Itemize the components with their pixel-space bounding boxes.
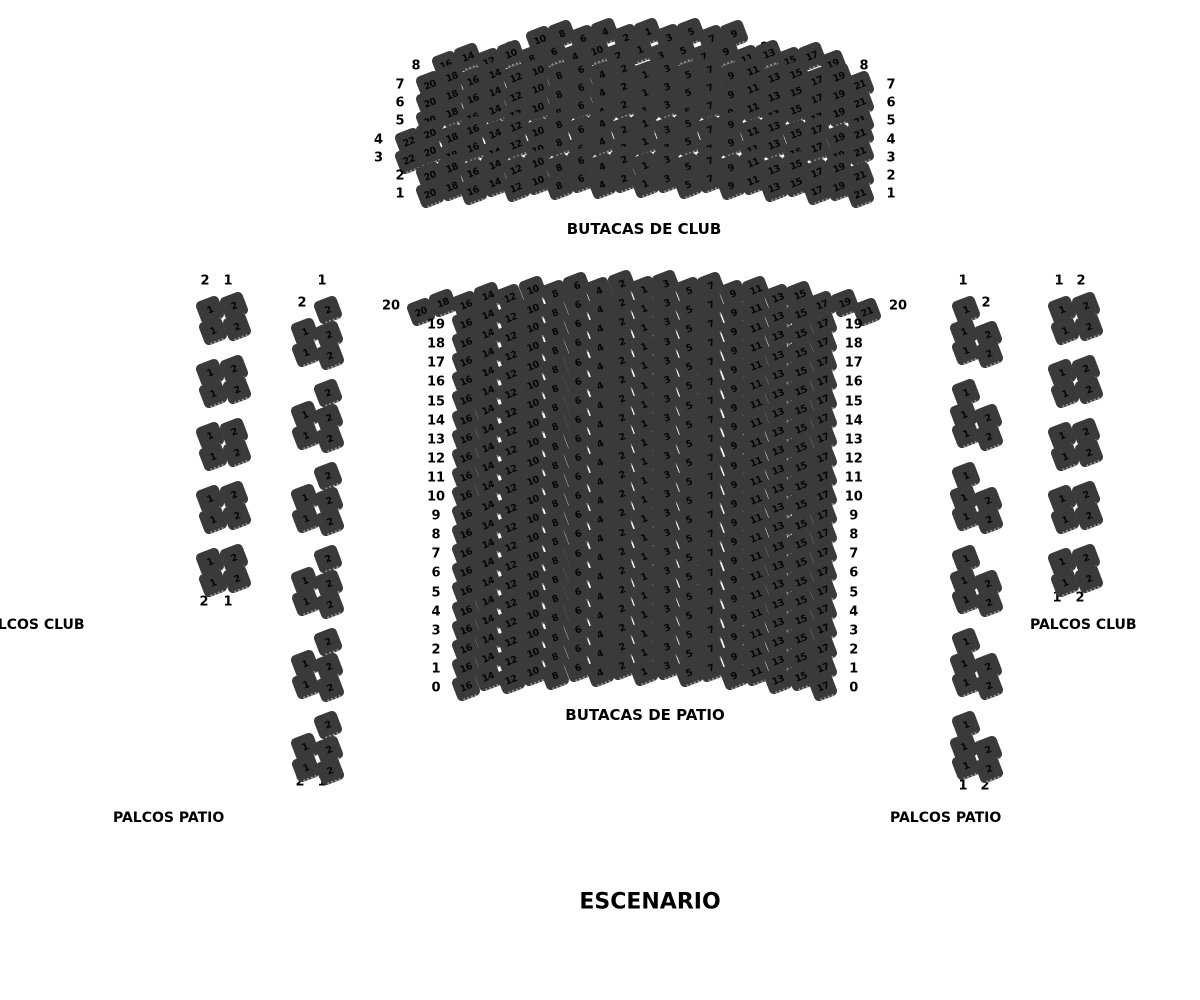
seat-map: BUTACAS DE CLUB BUTACAS DE PATIO PALCOS … — [0, 0, 1200, 1000]
row-label-right: 16 — [845, 375, 863, 390]
row-label-right: 4 — [849, 604, 858, 619]
palcos-patio-left-label: PALCOS PATIO — [113, 810, 224, 826]
row-label-right: 11 — [845, 470, 863, 485]
row-label-right: 2 — [886, 169, 895, 184]
row-label-left: 19 — [427, 318, 445, 333]
row-label-right: 18 — [845, 337, 863, 352]
row-label-left: 5 — [431, 585, 440, 600]
seat[interactable]: 2 — [312, 709, 343, 740]
patio-section-label: BUTACAS DE PATIO — [565, 706, 724, 724]
palco-column-header: 1 — [1054, 274, 1063, 289]
palco-column-header: 2 — [200, 274, 209, 289]
row-label-right: 10 — [845, 490, 863, 505]
row-label-right: 15 — [845, 394, 863, 409]
palcos-club-right-label: PALCOS CLUB — [1030, 617, 1137, 633]
row-label-left: 8 — [411, 59, 420, 74]
row-label-right: 20 — [889, 299, 907, 314]
row-label-right: 19 — [845, 318, 863, 333]
row-label-left: 15 — [427, 394, 445, 409]
row-label-left: 14 — [427, 413, 445, 428]
seat[interactable]: 2 — [312, 460, 343, 491]
palco-column-header: 1 — [223, 274, 232, 289]
palcos-club-left-label: PALCOS CLUB — [0, 617, 85, 633]
palco-column-footer: 1 — [223, 595, 232, 610]
seat[interactable]: 2 — [312, 543, 343, 574]
palco-column-header: 2 — [981, 296, 990, 311]
row-label-right: 5 — [849, 585, 858, 600]
row-label-right: 1 — [849, 661, 858, 676]
row-label-right: 13 — [845, 432, 863, 447]
row-label-left: 18 — [427, 337, 445, 352]
row-label-right: 17 — [845, 356, 863, 371]
seat[interactable]: 2 — [312, 377, 343, 408]
row-label-right: 3 — [849, 623, 858, 638]
club-section-label: BUTACAS DE CLUB — [567, 220, 722, 238]
row-label-left: 12 — [427, 451, 445, 466]
row-label-right: 12 — [845, 451, 863, 466]
row-label-left: 11 — [427, 470, 445, 485]
row-label-left: 1 — [431, 661, 440, 676]
row-label-left: 2 — [395, 169, 404, 184]
row-label-left: 13 — [427, 432, 445, 447]
row-label-right: 4 — [886, 132, 895, 147]
row-label-left: 8 — [431, 528, 440, 543]
row-label-left: 6 — [431, 566, 440, 581]
row-label-left: 16 — [427, 375, 445, 390]
palco-column-header: 2 — [297, 296, 306, 311]
row-label-right: 0 — [849, 681, 858, 696]
row-label-left: 7 — [395, 77, 404, 92]
stage-label: ESCENARIO — [579, 890, 720, 915]
row-label-right: 2 — [849, 642, 858, 657]
row-label-left: 4 — [431, 604, 440, 619]
row-label-right: 9 — [849, 509, 858, 524]
row-label-left: 9 — [431, 509, 440, 524]
row-label-right: 6 — [849, 566, 858, 581]
palcos-patio-right-label: PALCOS PATIO — [890, 810, 1001, 826]
row-label-right: 7 — [849, 547, 858, 562]
row-label-left: 1 — [395, 187, 404, 202]
row-label-right: 6 — [886, 95, 895, 110]
row-label-left: 6 — [395, 95, 404, 110]
palco-column-header: 1 — [317, 274, 326, 289]
row-label-left: 10 — [427, 490, 445, 505]
row-label-right: 7 — [886, 77, 895, 92]
palco-column-header: 2 — [1076, 274, 1085, 289]
row-label-left: 5 — [395, 114, 404, 129]
seat[interactable]: 2 — [312, 294, 343, 325]
row-label-left: 3 — [431, 623, 440, 638]
row-label-right: 3 — [886, 150, 895, 165]
row-label-left: 17 — [427, 356, 445, 371]
palco-column-header: 1 — [958, 274, 967, 289]
row-label-right: 14 — [845, 413, 863, 428]
row-label-right: 1 — [886, 187, 895, 202]
row-label-left: 2 — [431, 642, 440, 657]
palco-column-footer: 1 — [958, 779, 967, 794]
row-label-left: 0 — [431, 681, 440, 696]
row-label-left: 20 — [382, 299, 400, 314]
seat[interactable]: 2 — [312, 626, 343, 657]
row-label-right: 5 — [886, 114, 895, 129]
row-label-left: 3 — [374, 150, 383, 165]
row-label-left: 7 — [431, 547, 440, 562]
row-label-left: 4 — [374, 132, 383, 147]
row-label-right: 8 — [849, 528, 858, 543]
